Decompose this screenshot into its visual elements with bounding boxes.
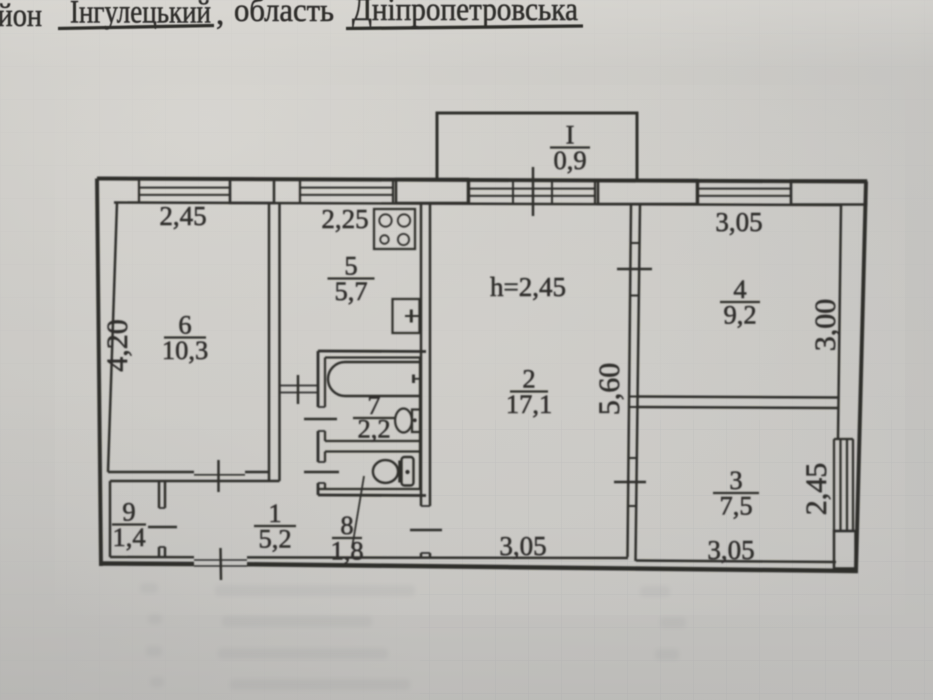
- svg-text:h=2,45: h=2,45: [490, 272, 566, 302]
- svg-text:2,45: 2,45: [800, 463, 833, 516]
- svg-text:17,1: 17,1: [506, 389, 552, 419]
- svg-text:2,2: 2,2: [357, 414, 390, 444]
- svg-text:7,5: 7,5: [719, 491, 752, 521]
- svg-text:4,20: 4,20: [101, 319, 134, 372]
- svg-text:область: область: [234, 0, 334, 29]
- svg-text:айон: айон: [0, 0, 42, 34]
- svg-text:3,00: 3,00: [809, 299, 842, 352]
- svg-text:1,8: 1,8: [330, 536, 363, 566]
- svg-text:,: ,: [216, 0, 224, 32]
- svg-text:3,05: 3,05: [715, 207, 762, 237]
- svg-text:3,05: 3,05: [499, 531, 546, 561]
- svg-text:5,60: 5,60: [593, 363, 626, 416]
- svg-text:5,7: 5,7: [334, 276, 367, 306]
- svg-text:3,05: 3,05: [707, 535, 754, 565]
- svg-text:5,2: 5,2: [258, 524, 291, 554]
- svg-text:2,45: 2,45: [159, 201, 206, 231]
- svg-text:2,25: 2,25: [321, 204, 368, 234]
- svg-text:1,4: 1,4: [112, 522, 145, 552]
- svg-text:10,3: 10,3: [162, 335, 208, 365]
- svg-text:0,9: 0,9: [553, 145, 586, 175]
- svg-text:Дніпропетровська: Дніпропетровська: [352, 0, 578, 28]
- svg-text:9,2: 9,2: [723, 300, 756, 330]
